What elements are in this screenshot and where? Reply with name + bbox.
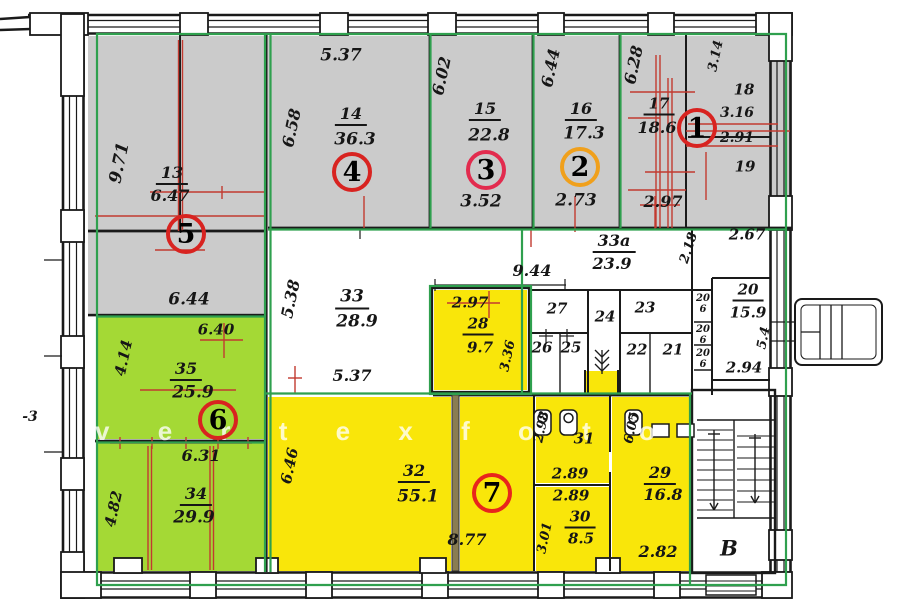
apartment-marker-6: 6 (198, 400, 238, 440)
apartment-marker-1: 1 (677, 108, 717, 148)
apartment-markers: 1234567 (0, 0, 900, 604)
apartment-marker-7: 7 (472, 473, 512, 513)
apartment-marker-4: 4 (332, 152, 372, 192)
apartment-marker-5: 5 (166, 214, 206, 254)
floor-plan: vertexfoto 9.71136.475.376.581436.36.021… (0, 0, 900, 604)
apartment-marker-2: 2 (560, 147, 600, 187)
apartment-marker-3: 3 (466, 150, 506, 190)
